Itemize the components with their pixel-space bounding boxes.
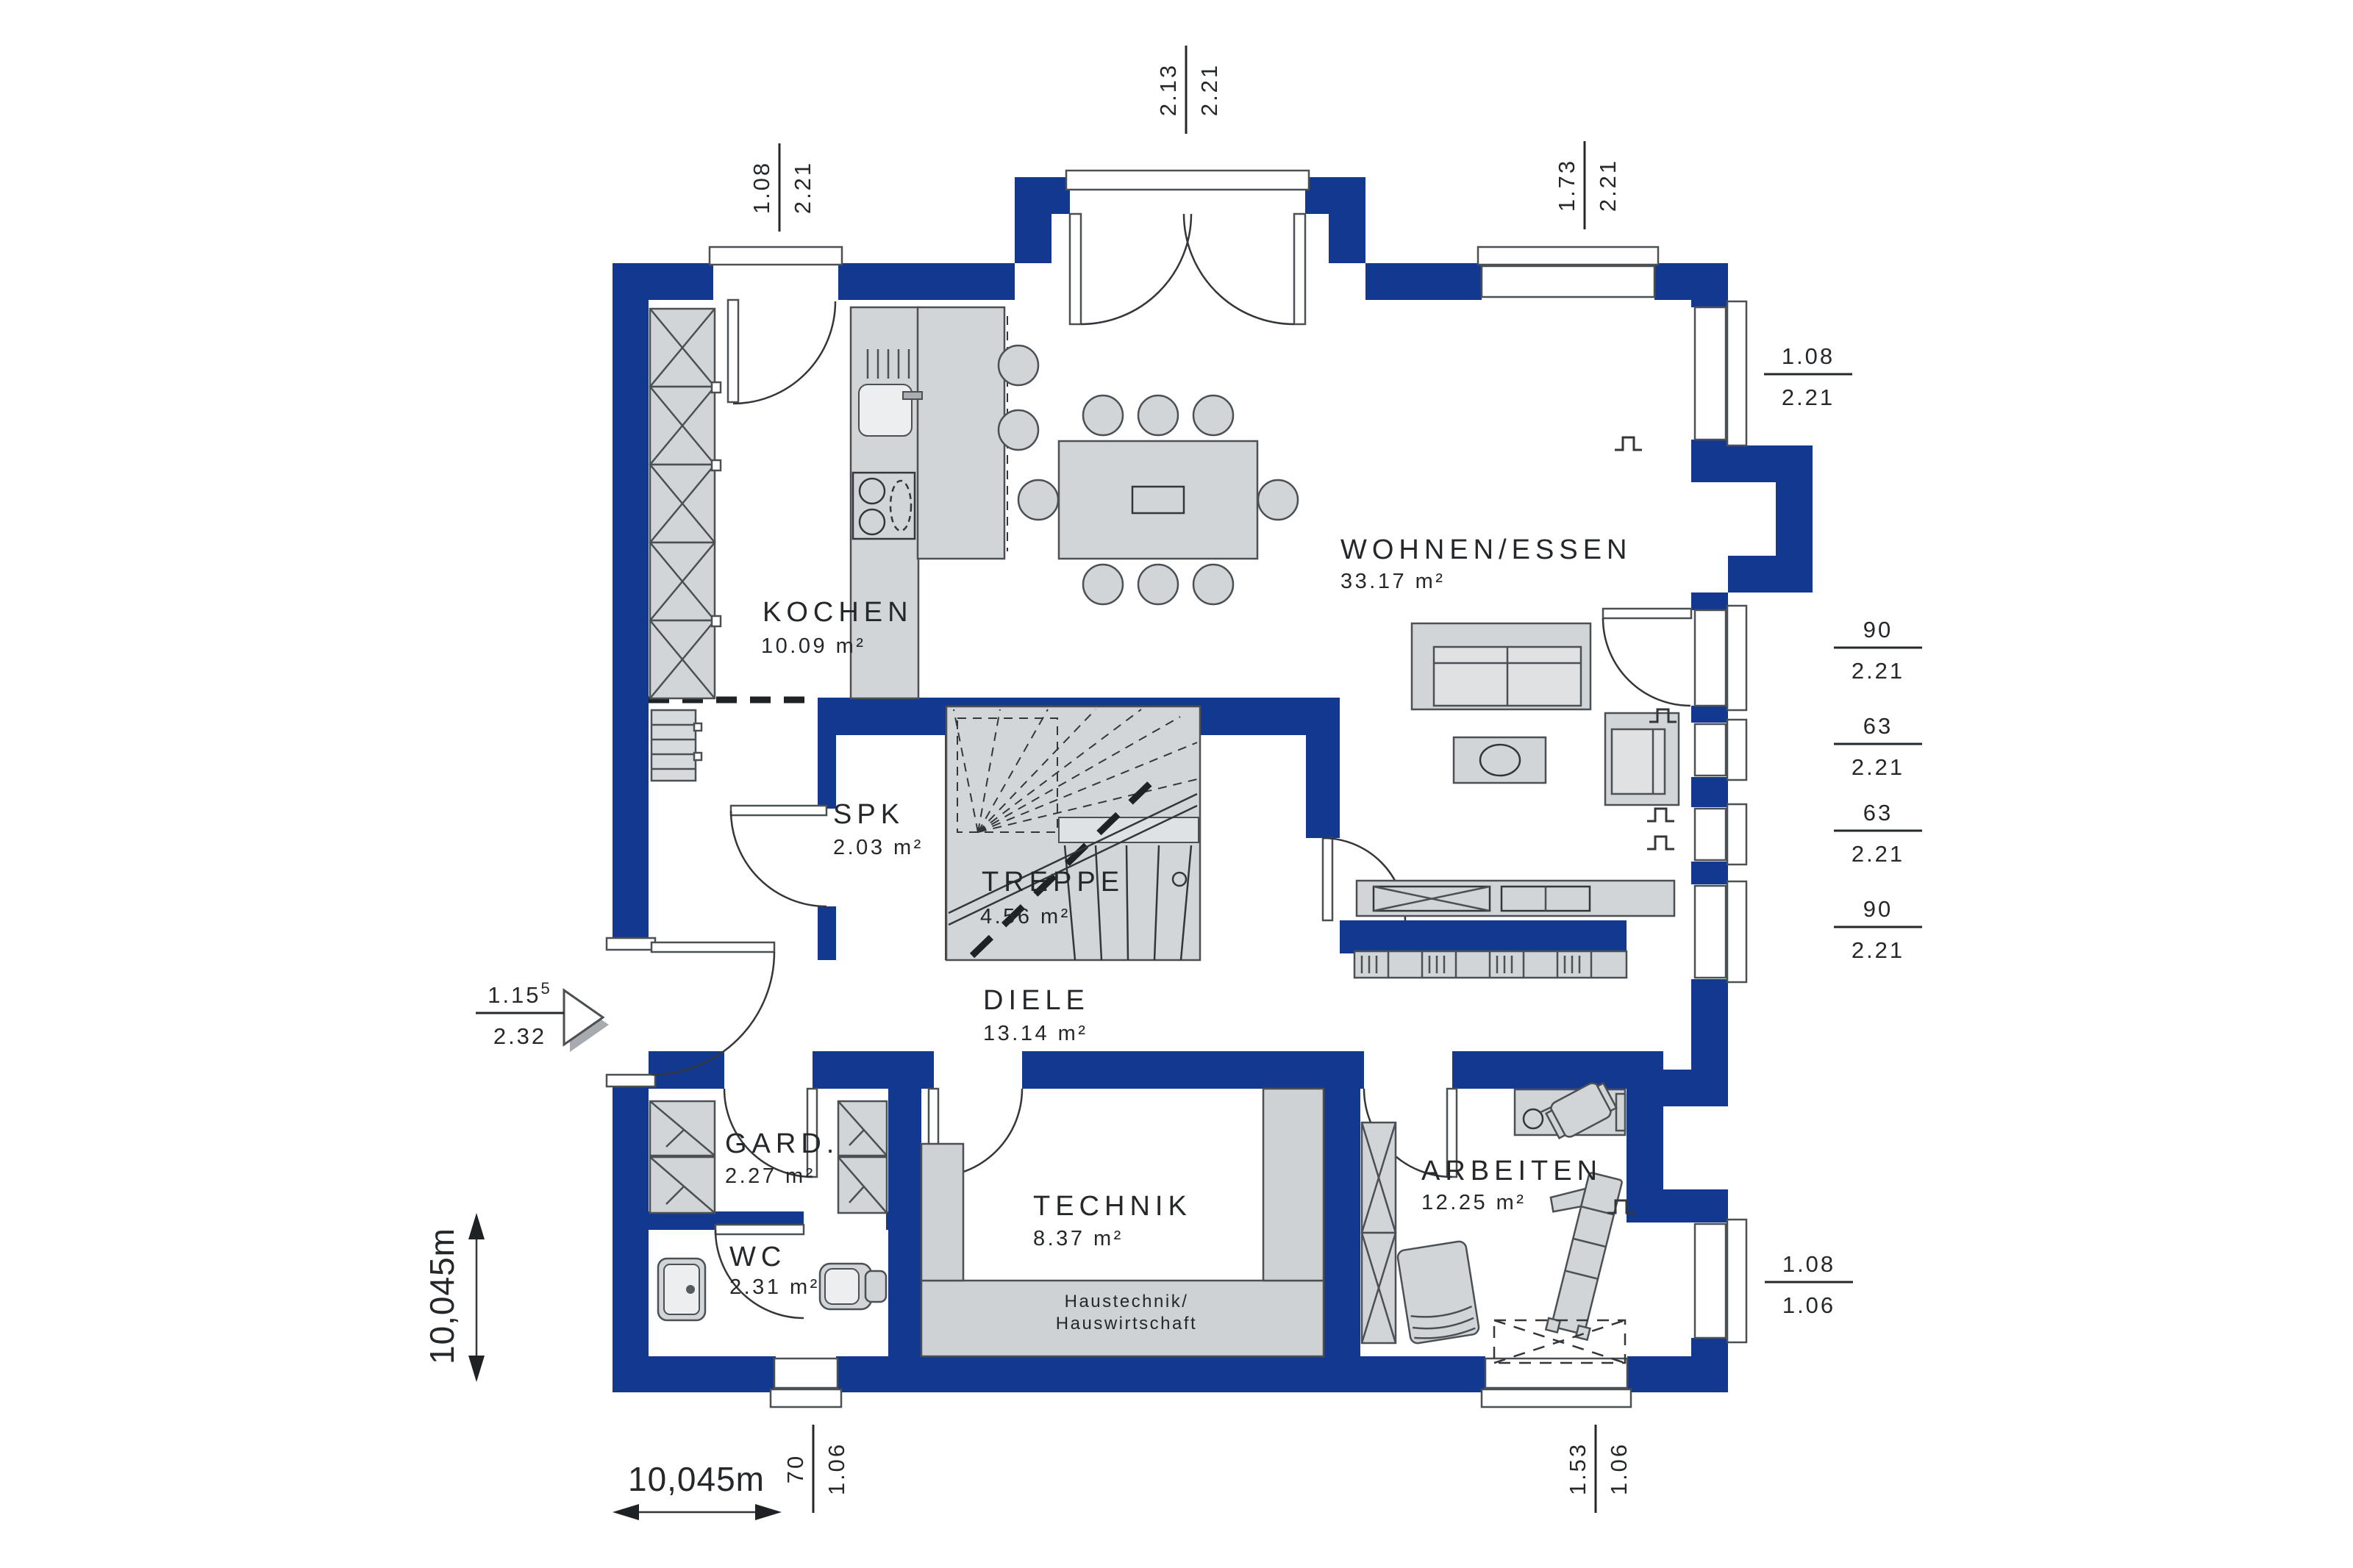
room-name-arbeiten: ARBEITEN bbox=[1421, 1156, 1602, 1186]
dimension-right-window-5: 902.21 bbox=[1834, 896, 1922, 963]
door-arc bbox=[733, 301, 835, 404]
dim-numerator: 1.155 bbox=[488, 979, 552, 1008]
dining-table bbox=[1059, 441, 1257, 559]
dim-numerator: 1.73 bbox=[1554, 159, 1579, 212]
coat-rack bbox=[651, 710, 701, 781]
sofa bbox=[1412, 623, 1590, 709]
radiator-icon bbox=[1647, 837, 1674, 849]
dimension-top-left-door: 1.082.21 bbox=[749, 143, 815, 232]
room-name-diele: DIELE bbox=[983, 985, 1090, 1016]
room-area-technik: 8.37 m² bbox=[1033, 1227, 1124, 1250]
stool bbox=[999, 346, 1038, 385]
door-leaf bbox=[1323, 838, 1332, 920]
door-leaf bbox=[1603, 609, 1691, 618]
door-arc bbox=[1603, 618, 1690, 706]
room-name-gard: GARD. bbox=[725, 1128, 839, 1159]
window-bottom-wc bbox=[771, 1358, 841, 1407]
door-leaf bbox=[1070, 214, 1081, 324]
dim-denominator: 2.21 bbox=[1852, 841, 1904, 867]
overall-height-label: 10,045m bbox=[423, 1228, 461, 1364]
dimension-right-window-4: 632.21 bbox=[1834, 800, 1922, 867]
door-spk bbox=[731, 806, 826, 906]
dim-denominator: 2.21 bbox=[1852, 937, 1904, 963]
dim-denominator: 2.21 bbox=[1595, 159, 1621, 212]
armchair bbox=[1605, 713, 1679, 805]
lounge-chair bbox=[1397, 1240, 1480, 1344]
dimension-bottom-right-window: 1.531.06 bbox=[1565, 1425, 1632, 1513]
stair-newel bbox=[1173, 873, 1186, 886]
room-name-spk: SPK bbox=[833, 799, 904, 830]
floor-plan: 10,045m 10,045m KOCHEN10.09 m²WOHNEN/ESS… bbox=[0, 0, 2353, 1568]
dim-numerator: 63 bbox=[1863, 800, 1893, 826]
dim-denominator: 2.21 bbox=[1852, 658, 1904, 684]
window-right-2 bbox=[1695, 720, 1746, 780]
dining-set bbox=[1018, 395, 1298, 604]
window-right-1 bbox=[1695, 301, 1746, 445]
room-area-wohnen-essen: 33.17 m² bbox=[1340, 570, 1445, 593]
door-leaf bbox=[1294, 214, 1305, 324]
coffee-table bbox=[1454, 737, 1546, 783]
dimension-right-window-1: 1.082.21 bbox=[1764, 343, 1852, 410]
dim-denominator: 1.06 bbox=[1606, 1442, 1632, 1495]
room-sub-technik: Hauswirtschaft bbox=[1056, 1314, 1197, 1333]
dim-denominator: 1.06 bbox=[1782, 1292, 1835, 1318]
entrance-arrow-icon bbox=[564, 990, 609, 1052]
room-sub-technik: Haustechnik/ bbox=[1065, 1292, 1189, 1311]
dim-numerator: 90 bbox=[1863, 617, 1893, 642]
room-area-treppe: 4.56 m² bbox=[980, 905, 1071, 928]
dim-numerator: 63 bbox=[1863, 713, 1893, 739]
wc-basin bbox=[658, 1259, 705, 1320]
radiator-icon bbox=[1647, 809, 1674, 821]
window-right-bott bbox=[1695, 1220, 1746, 1342]
room-name-wc: WC bbox=[729, 1242, 786, 1272]
faucet bbox=[903, 392, 922, 399]
room-name-treppe: TREPPE bbox=[982, 867, 1124, 898]
dimension-bottom-left-window: 701.06 bbox=[782, 1425, 849, 1513]
window-right-4 bbox=[1695, 881, 1746, 982]
dim-denominator: 2.21 bbox=[1196, 63, 1222, 116]
dimension-right-bottom-window: 1.081.06 bbox=[1765, 1251, 1853, 1318]
room-area-wc: 2.31 m² bbox=[729, 1275, 820, 1299]
dim-numerator: 1.08 bbox=[749, 161, 774, 214]
door-arc bbox=[731, 811, 826, 906]
monitor bbox=[1616, 1094, 1625, 1131]
dim-numerator: 1.08 bbox=[1782, 343, 1835, 369]
window-top-terrace-door bbox=[1066, 171, 1309, 324]
dim-numerator: 90 bbox=[1863, 896, 1893, 922]
window-right-3 bbox=[1695, 804, 1746, 864]
room-area-diele: 13.14 m² bbox=[983, 1022, 1088, 1045]
dim-numerator: 1.08 bbox=[1782, 1251, 1835, 1277]
dimension-entrance-door: 1.1552.32 bbox=[476, 979, 564, 1049]
dim-denominator: 2.21 bbox=[790, 161, 815, 214]
room-area-gard: 2.27 m² bbox=[725, 1164, 815, 1188]
door-leaf bbox=[651, 942, 774, 952]
door-arc bbox=[1081, 214, 1191, 324]
radiator-icon bbox=[1615, 437, 1642, 450]
overall-height: 10,045m bbox=[423, 1213, 485, 1382]
dim-denominator: 2.21 bbox=[1852, 754, 1904, 780]
dim-denominator: 2.32 bbox=[493, 1023, 546, 1049]
dim-numerator: 2.13 bbox=[1155, 63, 1181, 116]
room-area-arbeiten: 12.25 m² bbox=[1421, 1191, 1526, 1214]
stool bbox=[999, 410, 1038, 450]
room-area-kochen: 10.09 m² bbox=[761, 634, 865, 658]
sideboard bbox=[1357, 881, 1674, 916]
window-right-door bbox=[1603, 606, 1746, 710]
room-area-spk: 2.03 m² bbox=[833, 836, 924, 859]
door-arc bbox=[1184, 214, 1294, 324]
kitchen-counter bbox=[851, 307, 1038, 698]
door-leaf bbox=[715, 1225, 804, 1234]
dim-denominator: 2.21 bbox=[1782, 384, 1835, 410]
arbeiten-cabinet bbox=[1362, 1123, 1396, 1343]
window-bottom-terrace bbox=[1482, 1358, 1631, 1407]
room-name-technik: TECHNIK bbox=[1033, 1191, 1192, 1222]
room-name-wohnen-essen: WOHNEN/ESSEN bbox=[1340, 534, 1632, 565]
door-leaf bbox=[728, 300, 738, 402]
dimension-right-window-2: 902.21 bbox=[1834, 617, 1922, 684]
dimension-right-window-3: 632.21 bbox=[1834, 713, 1922, 780]
floor-plan-page: 10,045m 10,045m KOCHEN10.09 m²WOHNEN/ESS… bbox=[0, 0, 2353, 1568]
dim-denominator: 1.06 bbox=[824, 1442, 849, 1495]
guest-bed-folded bbox=[1519, 1164, 1627, 1339]
overall-width: 10,045m bbox=[613, 1460, 782, 1520]
bookshelf bbox=[1354, 951, 1627, 978]
window-top-right bbox=[1478, 247, 1658, 297]
dimension-top-right-window: 1.732.21 bbox=[1554, 141, 1621, 229]
dim-numerator: 1.53 bbox=[1565, 1442, 1590, 1495]
door-leaf bbox=[731, 806, 826, 815]
wc-toilet bbox=[820, 1264, 886, 1309]
overall-width-label: 10,045m bbox=[628, 1460, 765, 1498]
room-name-kochen: KOCHEN bbox=[763, 597, 913, 628]
kitchen-tall-cabinets bbox=[650, 309, 721, 698]
window-top-left-door bbox=[710, 247, 842, 404]
dim-numerator: 70 bbox=[782, 1454, 808, 1483]
dimension-top-terrace-door: 2.132.21 bbox=[1155, 46, 1222, 134]
